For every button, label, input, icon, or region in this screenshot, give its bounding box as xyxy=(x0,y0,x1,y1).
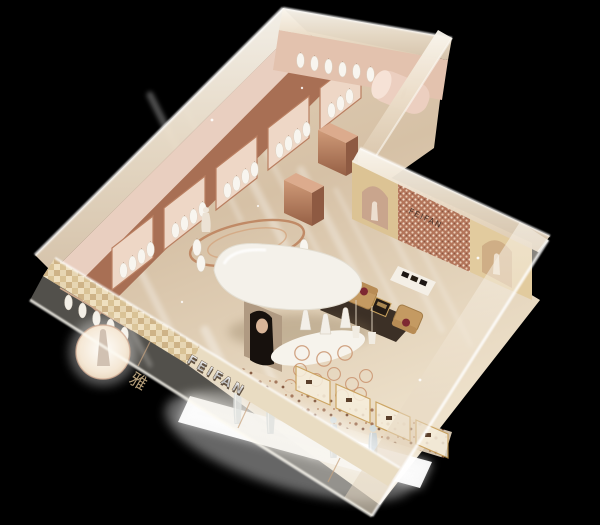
boutique-render-svg: FEIFAN xyxy=(0,0,600,525)
portrait-woman-face xyxy=(256,319,268,334)
niche-mannequin xyxy=(371,201,378,221)
screenshot-root: FEIFAN xyxy=(0,0,600,525)
spotlight-niche xyxy=(69,318,137,386)
